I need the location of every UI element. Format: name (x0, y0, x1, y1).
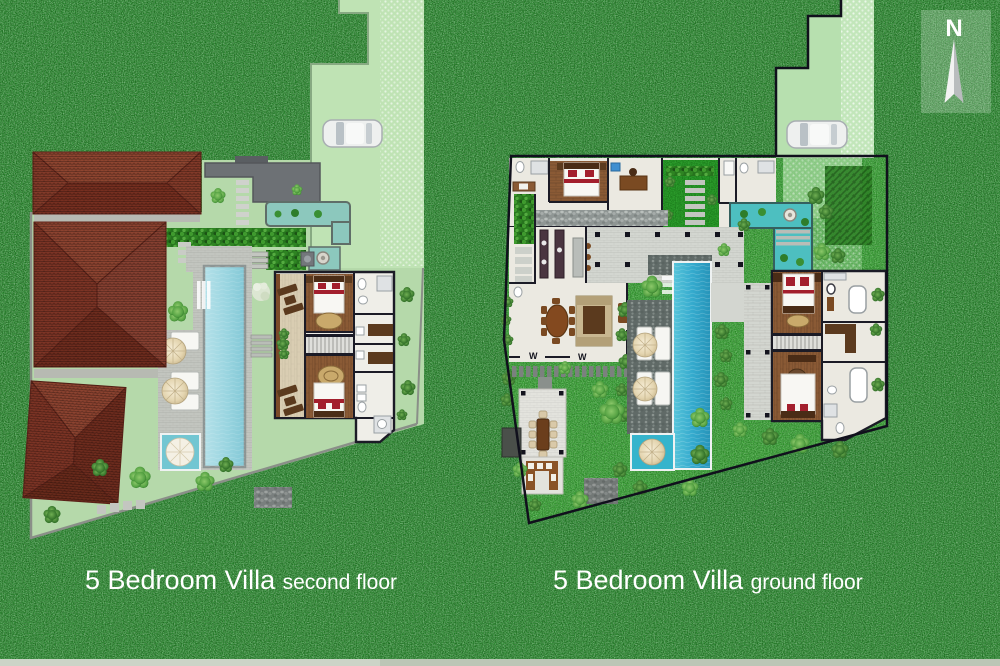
svg-text:N: N (945, 15, 962, 42)
svg-text:W: W (578, 352, 587, 362)
svg-text:W: W (529, 351, 538, 361)
